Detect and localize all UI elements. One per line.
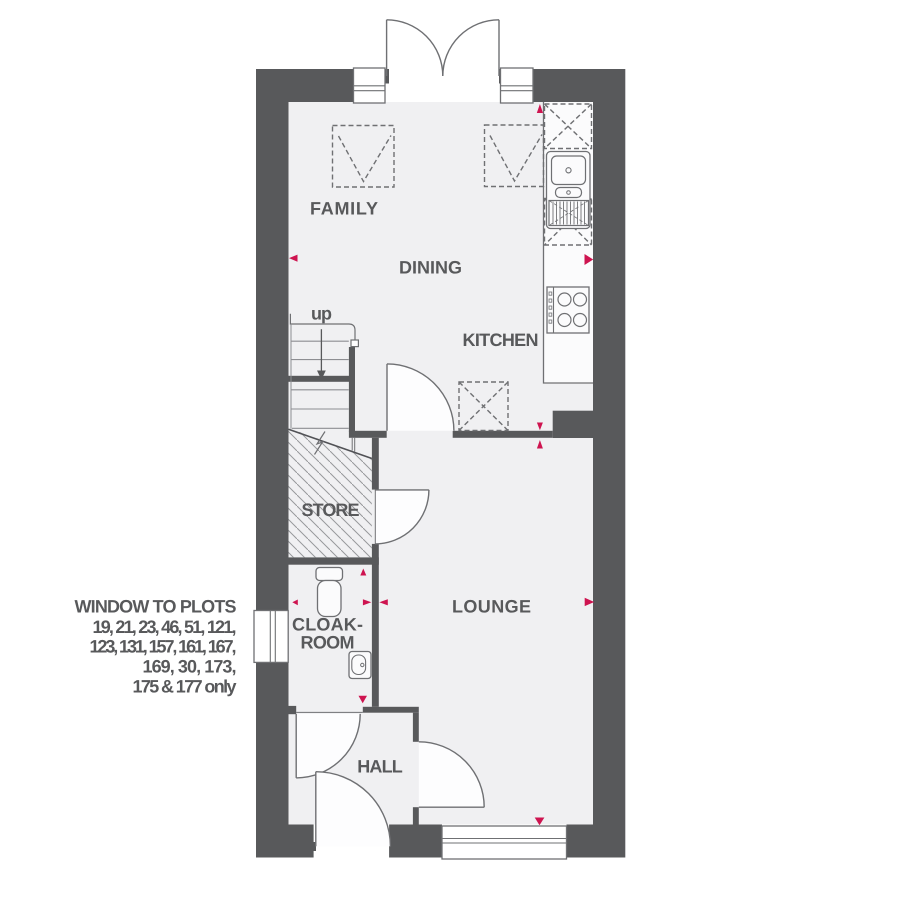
svg-text:STORE: STORE (302, 500, 360, 520)
svg-text:HALL: HALL (357, 757, 403, 777)
svg-text:LOUNGE: LOUNGE (452, 597, 531, 617)
svg-text:KITCHEN: KITCHEN (463, 330, 539, 350)
svg-text:WINDOW TO PLOTS: WINDOW TO PLOTS (75, 597, 237, 617)
svg-text:CLOAK-: CLOAK- (292, 615, 363, 635)
svg-text:up: up (311, 304, 332, 324)
svg-text:19, 21, 23, 46, 51, 121,: 19, 21, 23, 46, 51, 121, (93, 617, 237, 637)
svg-text:DINING: DINING (399, 257, 462, 277)
svg-text:FAMILY: FAMILY (310, 198, 378, 218)
svg-text:175 & 177 only: 175 & 177 only (133, 677, 237, 697)
svg-text:123, 131, 157, 161, 167,: 123, 131, 157, 161, 167, (90, 637, 237, 657)
svg-text:ROOM: ROOM (301, 633, 355, 653)
svg-text:169, 30, 173,: 169, 30, 173, (143, 656, 237, 676)
